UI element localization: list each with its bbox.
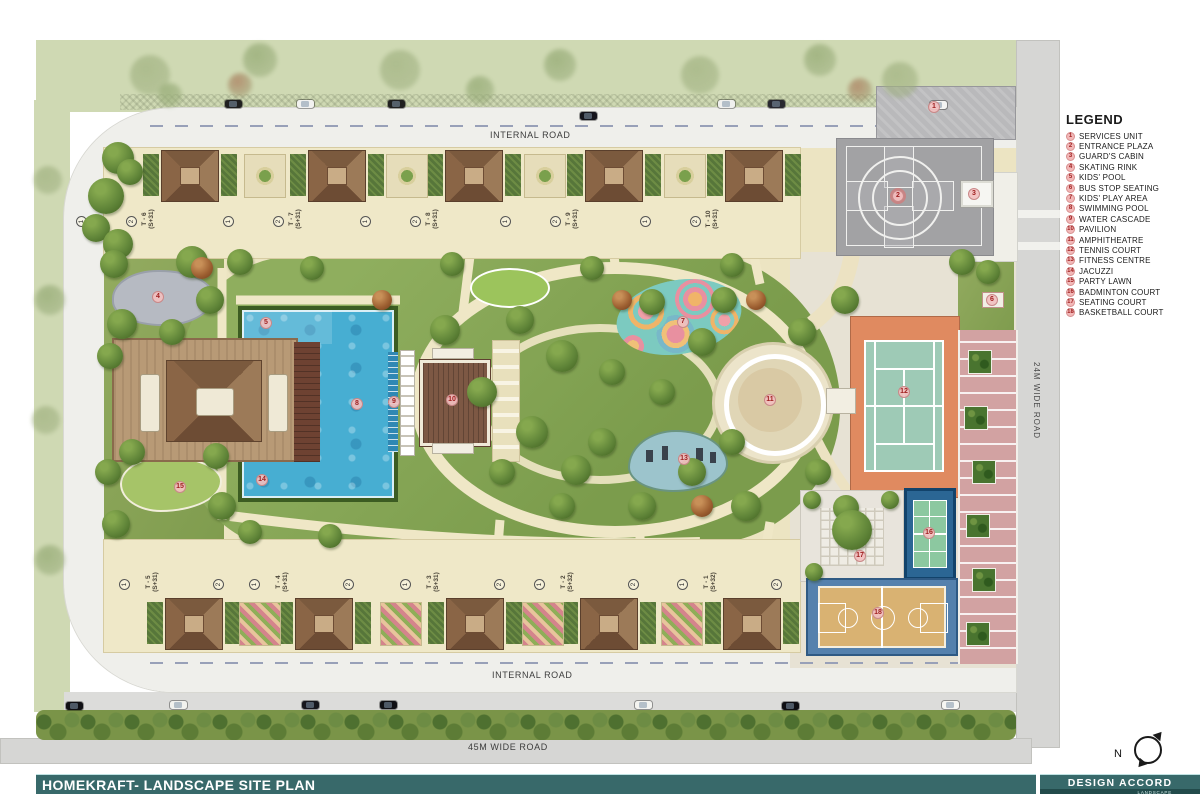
legend-item-label: PAVILION: [1079, 225, 1116, 234]
legend-item-label: KIDS' POOL: [1079, 173, 1126, 182]
legend-item: 7KIDS' PLAY AREA: [1066, 193, 1198, 203]
legend-item-number: 2: [1066, 142, 1075, 151]
legend-item: 10PAVILION: [1066, 225, 1198, 235]
plan-marker: 2: [892, 190, 904, 202]
title-bar: HOMEKRAFT- LANDSCAPE SITE PLAN: [36, 774, 1036, 794]
plan-marker: 7: [677, 316, 689, 328]
brand-subtitle: LANDSCAPE: [1138, 790, 1172, 794]
legend-item-number: 10: [1066, 225, 1075, 234]
legend-item-number: 12: [1066, 246, 1075, 255]
plan-marker: 4: [152, 291, 164, 303]
legend-item-number: 8: [1066, 204, 1075, 213]
legend-item-number: 9: [1066, 215, 1075, 224]
north-label: N: [1114, 748, 1122, 760]
legend-item-label: FITNESS CENTRE: [1079, 256, 1151, 265]
legend-item-label: BUS STOP SEATING: [1079, 184, 1159, 193]
legend-item: 6BUS STOP SEATING: [1066, 183, 1198, 193]
legend-item-label: SWIMMING POOL: [1079, 204, 1149, 213]
legend-item-label: AMPHITHEATRE: [1079, 236, 1143, 245]
legend-item-label: JACUZZI: [1079, 267, 1113, 276]
legend-list: 1SERVICES UNIT2ENTRANCE PLAZA3GUARD'S CA…: [1066, 131, 1198, 318]
plan-marker: 1: [928, 101, 940, 113]
page-title: HOMEKRAFT- LANDSCAPE SITE PLAN: [36, 777, 315, 793]
legend-item-number: 5: [1066, 173, 1075, 182]
brand-name: DESIGN ACCORD: [1040, 777, 1200, 789]
plan-marker: 13: [678, 453, 690, 465]
legend-item-number: 14: [1066, 267, 1075, 276]
legend-item-number: 16: [1066, 288, 1075, 297]
brand-strip: [1040, 789, 1200, 794]
legend-item-label: KIDS' PLAY AREA: [1079, 194, 1148, 203]
legend-item: 1SERVICES UNIT: [1066, 131, 1198, 141]
legend-item: 5KIDS' POOL: [1066, 173, 1198, 183]
legend-item: 17SEATING COURT: [1066, 297, 1198, 307]
legend-item: 14JACUZZI: [1066, 266, 1198, 276]
legend-item-label: SERVICES UNIT: [1079, 132, 1143, 141]
legend-item: 4SKATING RINK: [1066, 162, 1198, 172]
legend-item: 2ENTRANCE PLAZA: [1066, 141, 1198, 151]
site-plan-canvas: INTERNAL ROAD INTERNAL ROAD 45M WIDE ROA…: [0, 0, 1200, 794]
legend-item-number: 6: [1066, 184, 1075, 193]
legend-item-label: ENTRANCE PLAZA: [1079, 142, 1153, 151]
plan-marker: 16: [923, 527, 935, 539]
legend-item-label: GUARD'S CABIN: [1079, 152, 1144, 161]
legend-item-number: 1: [1066, 132, 1075, 141]
legend-item: 8SWIMMING POOL: [1066, 204, 1198, 214]
legend-item-label: WATER CASCADE: [1079, 215, 1151, 224]
plan-marker: 8: [351, 398, 363, 410]
plan-marker: 15: [174, 481, 186, 493]
legend-item-label: PARTY LAWN: [1079, 277, 1132, 286]
plan-marker: 10: [446, 394, 458, 406]
legend-item: 13FITNESS CENTRE: [1066, 256, 1198, 266]
plan-marker: 9: [388, 396, 400, 408]
plan-marker: 18: [872, 607, 884, 619]
brand-block: DESIGN ACCORD LANDSCAPE: [1040, 774, 1200, 794]
legend-item: 9WATER CASCADE: [1066, 214, 1198, 224]
legend-item-number: 7: [1066, 194, 1075, 203]
legend-item-number: 4: [1066, 163, 1075, 172]
plan-marker: 6: [986, 294, 998, 306]
legend-item-number: 11: [1066, 236, 1075, 245]
legend-item: 11AMPHITHEATRE: [1066, 235, 1198, 245]
legend-item-label: BASKETBALL COURT: [1079, 308, 1164, 317]
plan-marker: 11: [764, 394, 776, 406]
legend-item-label: BADMINTON COURT: [1079, 288, 1160, 297]
legend-item-number: 13: [1066, 256, 1075, 265]
plan-marker: 17: [854, 550, 866, 562]
legend-item: 12TENNIS COURT: [1066, 245, 1198, 255]
plan-marker: 5: [260, 317, 272, 329]
legend-item: 15PARTY LAWN: [1066, 276, 1198, 286]
plan-marker-layer: 123456789101112131415161718: [0, 0, 1200, 794]
plan-marker: 3: [968, 188, 980, 200]
legend-item: 3GUARD'S CABIN: [1066, 152, 1198, 162]
plan-marker: 14: [256, 474, 268, 486]
legend-item-label: TENNIS COURT: [1079, 246, 1141, 255]
legend-item-number: 3: [1066, 152, 1075, 161]
plan-marker: 12: [898, 386, 910, 398]
legend-title: LEGEND: [1066, 112, 1198, 127]
legend-item-label: SEATING COURT: [1079, 298, 1147, 307]
legend-panel: LEGEND 1SERVICES UNIT2ENTRANCE PLAZA3GUA…: [1066, 112, 1198, 318]
legend-item: 18BASKETBALL COURT: [1066, 308, 1198, 318]
legend-item-number: 17: [1066, 298, 1075, 307]
legend-item-label: SKATING RINK: [1079, 163, 1137, 172]
legend-item: 16BADMINTON COURT: [1066, 287, 1198, 297]
legend-item-number: 18: [1066, 308, 1075, 317]
legend-item-number: 15: [1066, 277, 1075, 286]
